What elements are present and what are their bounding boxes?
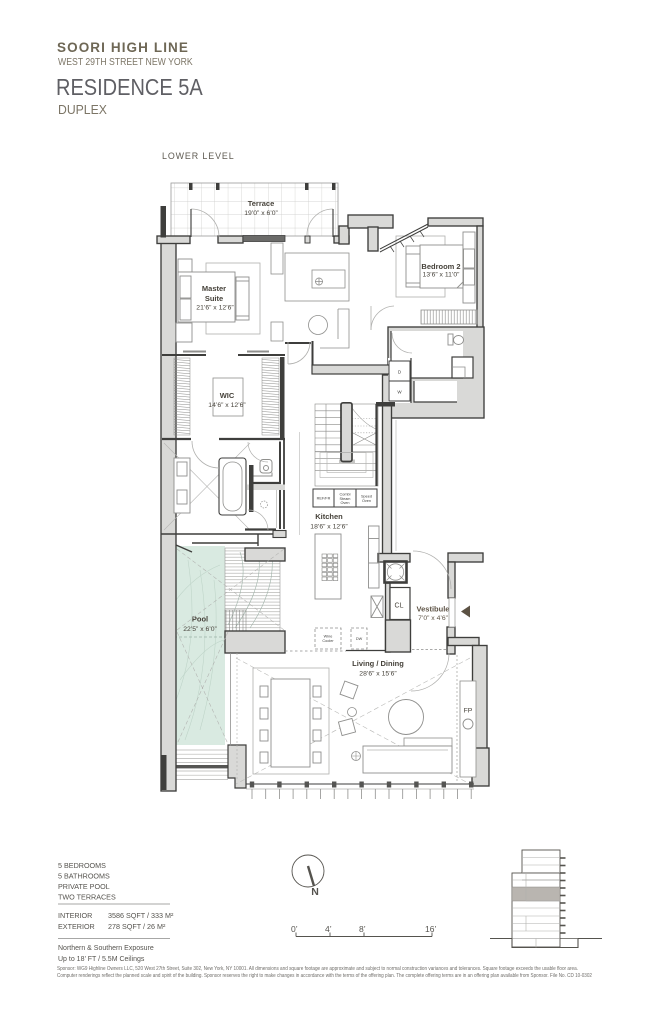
svg-text:13’6” x 11’0”: 13’6” x 11’0” — [423, 272, 461, 279]
svg-text:28’6” x 15’6”: 28’6” x 15’6” — [359, 671, 397, 678]
svg-text:Oven: Oven — [362, 499, 371, 503]
svg-text:RESIDENCE 5A: RESIDENCE 5A — [56, 74, 203, 101]
svg-text:19’0” x 6’0”: 19’0” x 6’0” — [244, 210, 278, 217]
svg-text:SOORI HIGH LINE: SOORI HIGH LINE — [57, 40, 189, 55]
svg-text:16’: 16’ — [425, 924, 436, 934]
svg-text:N: N — [311, 886, 319, 898]
svg-text:DW: DW — [356, 637, 363, 641]
svg-text:EXTERIOR: EXTERIOR — [58, 922, 95, 931]
svg-text:14’6” x 12’6”: 14’6” x 12’6” — [208, 402, 246, 409]
svg-text:PRIVATE POOL: PRIVATE POOL — [58, 882, 110, 891]
svg-text:Computer renderings reflect th: Computer renderings reflect the planned … — [57, 973, 592, 979]
svg-text:Master: Master — [202, 284, 226, 293]
svg-text:Living / Dining: Living / Dining — [352, 659, 404, 668]
svg-text:Sponsor: WG9 Highline Owners L: Sponsor: WG9 Highline Owners LLC, 520 We… — [57, 966, 578, 972]
svg-text:18’6” x 12’6”: 18’6” x 12’6” — [310, 524, 348, 531]
svg-text:278 SQFT / 26 M²: 278 SQFT / 26 M² — [108, 922, 166, 931]
svg-text:4’: 4’ — [325, 924, 332, 934]
svg-text:21’6” x 12’6”: 21’6” x 12’6” — [196, 305, 234, 312]
svg-text:Speed: Speed — [361, 495, 372, 499]
svg-text:8’: 8’ — [359, 924, 366, 934]
svg-text:5 BATHROOMS: 5 BATHROOMS — [58, 872, 110, 881]
svg-text:LOWER LEVEL: LOWER LEVEL — [162, 151, 235, 161]
svg-text:Kitchen: Kitchen — [315, 512, 343, 521]
svg-text:WIC: WIC — [220, 391, 235, 400]
svg-text:INTERIOR: INTERIOR — [58, 911, 92, 920]
svg-text:DUPLEX: DUPLEX — [58, 102, 107, 118]
svg-text:Suite: Suite — [205, 294, 223, 303]
svg-text:TWO TERRACES: TWO TERRACES — [58, 893, 116, 902]
svg-text:Terrace: Terrace — [248, 199, 275, 208]
svg-text:Vestibule: Vestibule — [417, 605, 450, 614]
svg-text:22’5” x 6’0”: 22’5” x 6’0” — [183, 626, 217, 633]
svg-text:3586 SQFT / 333 M²: 3586 SQFT / 333 M² — [108, 911, 174, 920]
svg-text:FP: FP — [464, 708, 473, 715]
svg-text:0’: 0’ — [291, 924, 298, 934]
svg-text:Oven: Oven — [340, 501, 349, 505]
svg-text:Wine: Wine — [324, 635, 333, 639]
svg-text:Pool: Pool — [192, 615, 208, 624]
svg-text:WEST 29TH STREET NEW YORK: WEST 29TH STREET NEW YORK — [58, 56, 193, 67]
svg-text:Bedroom 2: Bedroom 2 — [421, 262, 460, 271]
svg-text:Cooler: Cooler — [322, 639, 334, 643]
svg-text:7’0” x 4’6”: 7’0” x 4’6” — [418, 615, 449, 622]
svg-text:REF/FR: REF/FR — [317, 497, 331, 501]
svg-text:5 BEDROOMS: 5 BEDROOMS — [58, 861, 106, 870]
svg-text:Up to 18’ FT / 5.5M Ceilings: Up to 18’ FT / 5.5M Ceilings — [58, 956, 145, 963]
svg-text:Northern & Southern Exposure: Northern & Southern Exposure — [58, 945, 154, 952]
svg-text:CL: CL — [395, 603, 404, 610]
